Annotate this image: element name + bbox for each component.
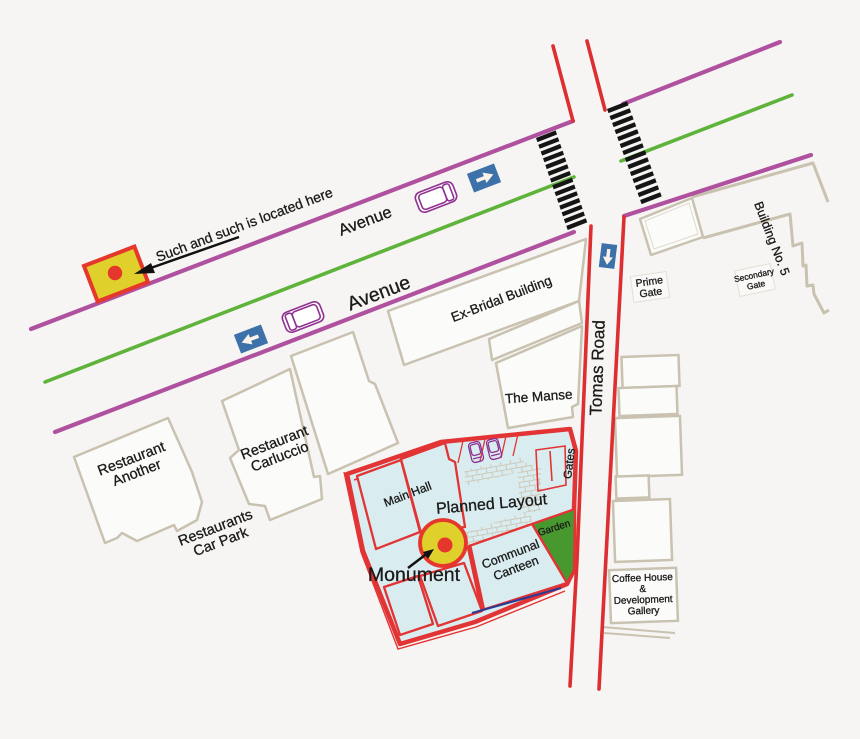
svg-text:Monument: Monument <box>368 564 461 586</box>
svg-text:Tomas Road: Tomas Road <box>586 320 608 416</box>
svg-text:PrimeGate: PrimeGate <box>635 274 666 301</box>
